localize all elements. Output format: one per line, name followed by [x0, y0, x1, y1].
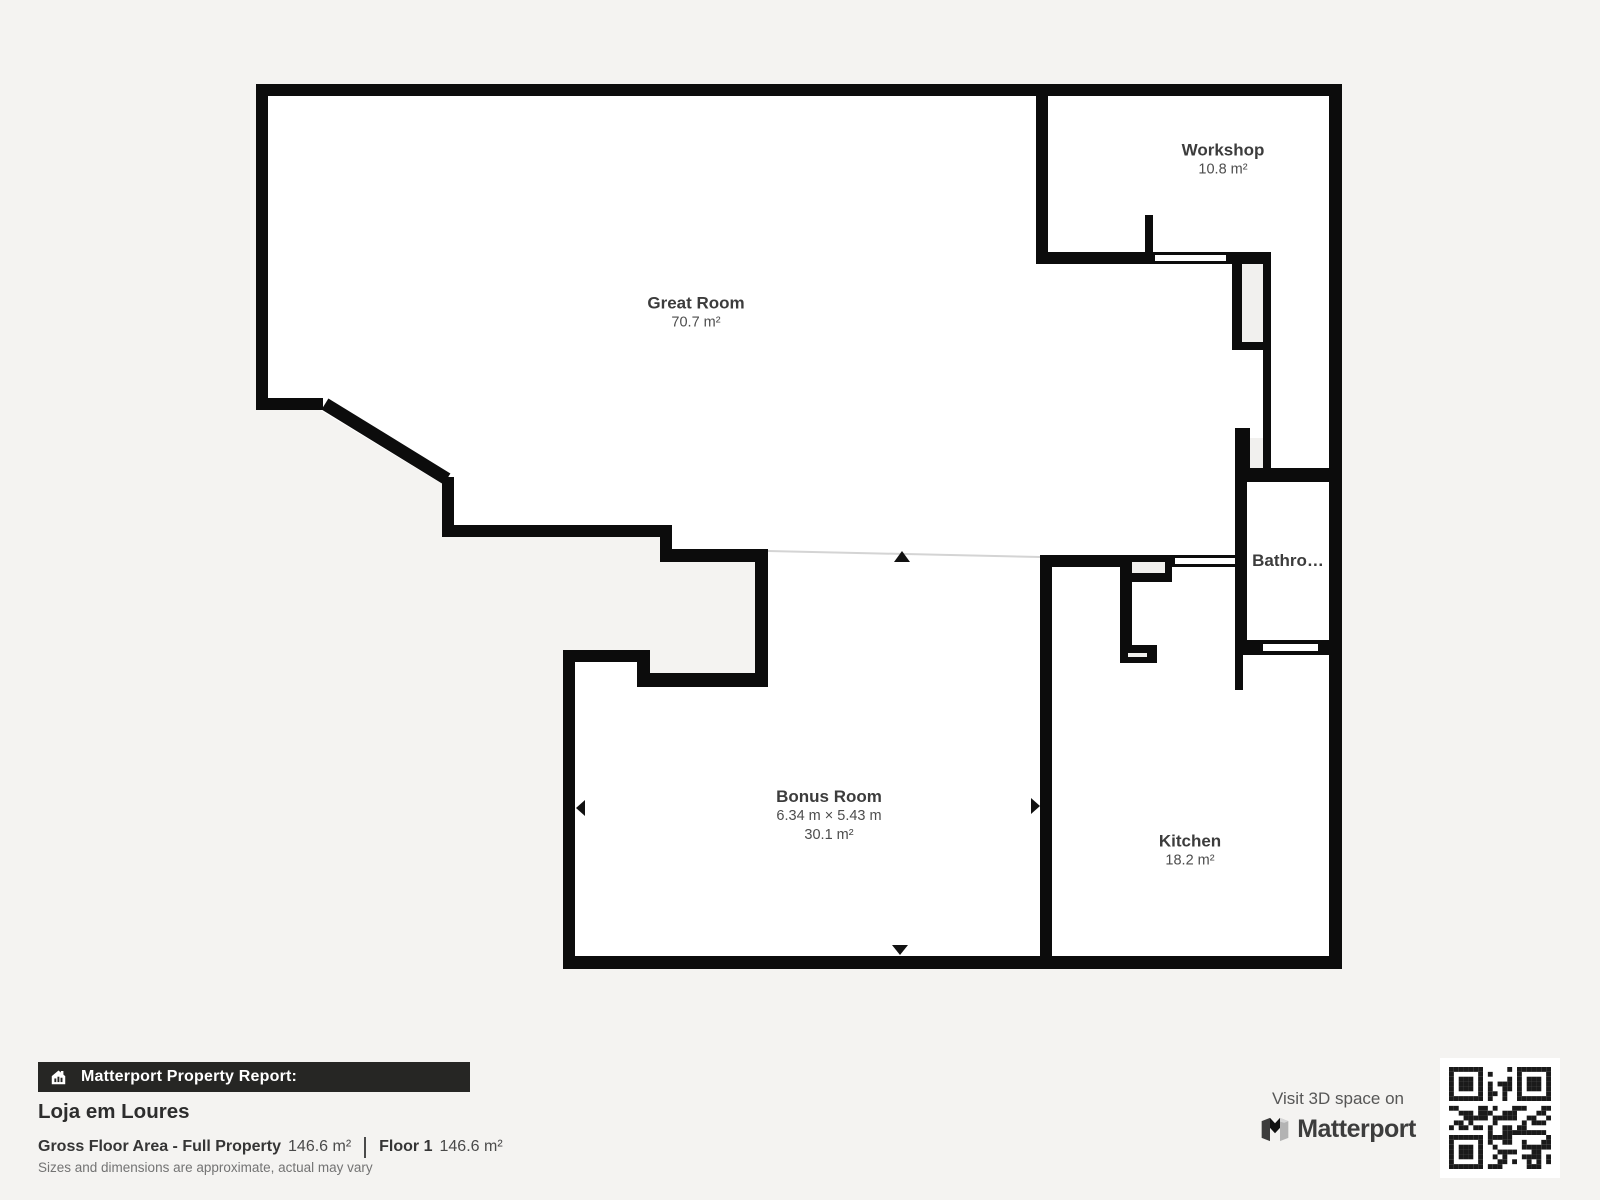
visit-3d-label: Visit 3D space on [1248, 1089, 1428, 1109]
floorplan [0, 0, 1600, 1200]
banner-title: Matterport Property Report: [81, 1068, 297, 1086]
floor-value: 146.6 m² [440, 1138, 503, 1156]
disclaimer-text: Sizes and dimensions are approximate, ac… [38, 1160, 373, 1175]
kitchen-door [1175, 558, 1235, 564]
qr-code-pattern [1449, 1067, 1551, 1169]
small-niche [1250, 438, 1263, 468]
bathroom-door [1263, 644, 1318, 651]
workshop-door [1155, 255, 1226, 261]
matterport-promo: Visit 3D space on Matterport [1248, 1089, 1428, 1144]
page-background: { "background": "#f4f3f1", "floorplan": … [0, 0, 1600, 1200]
floor-area [256, 84, 1342, 969]
matterport-wordmark: Matterport [1297, 1115, 1416, 1144]
property-name: Loja em Loures [38, 1100, 190, 1124]
gross-floor-area-value: 146.6 m² [288, 1138, 351, 1156]
shaft-niche [1242, 264, 1263, 342]
stats-separator [364, 1137, 366, 1158]
matterport-logo-icon [1260, 1116, 1290, 1143]
gross-floor-area-label: Gross Floor Area - Full Property [38, 1138, 281, 1156]
home-chart-icon [49, 1068, 68, 1087]
kitchen-niche [1132, 562, 1165, 573]
foot-slot [1128, 653, 1147, 657]
qr-code [1440, 1058, 1560, 1178]
floor-label: Floor 1 [379, 1138, 432, 1156]
area-stats: Gross Floor Area - Full Property 146.6 m… [38, 1135, 503, 1159]
matterport-brand-row: Matterport [1248, 1115, 1428, 1144]
report-banner: Matterport Property Report: [38, 1062, 470, 1092]
